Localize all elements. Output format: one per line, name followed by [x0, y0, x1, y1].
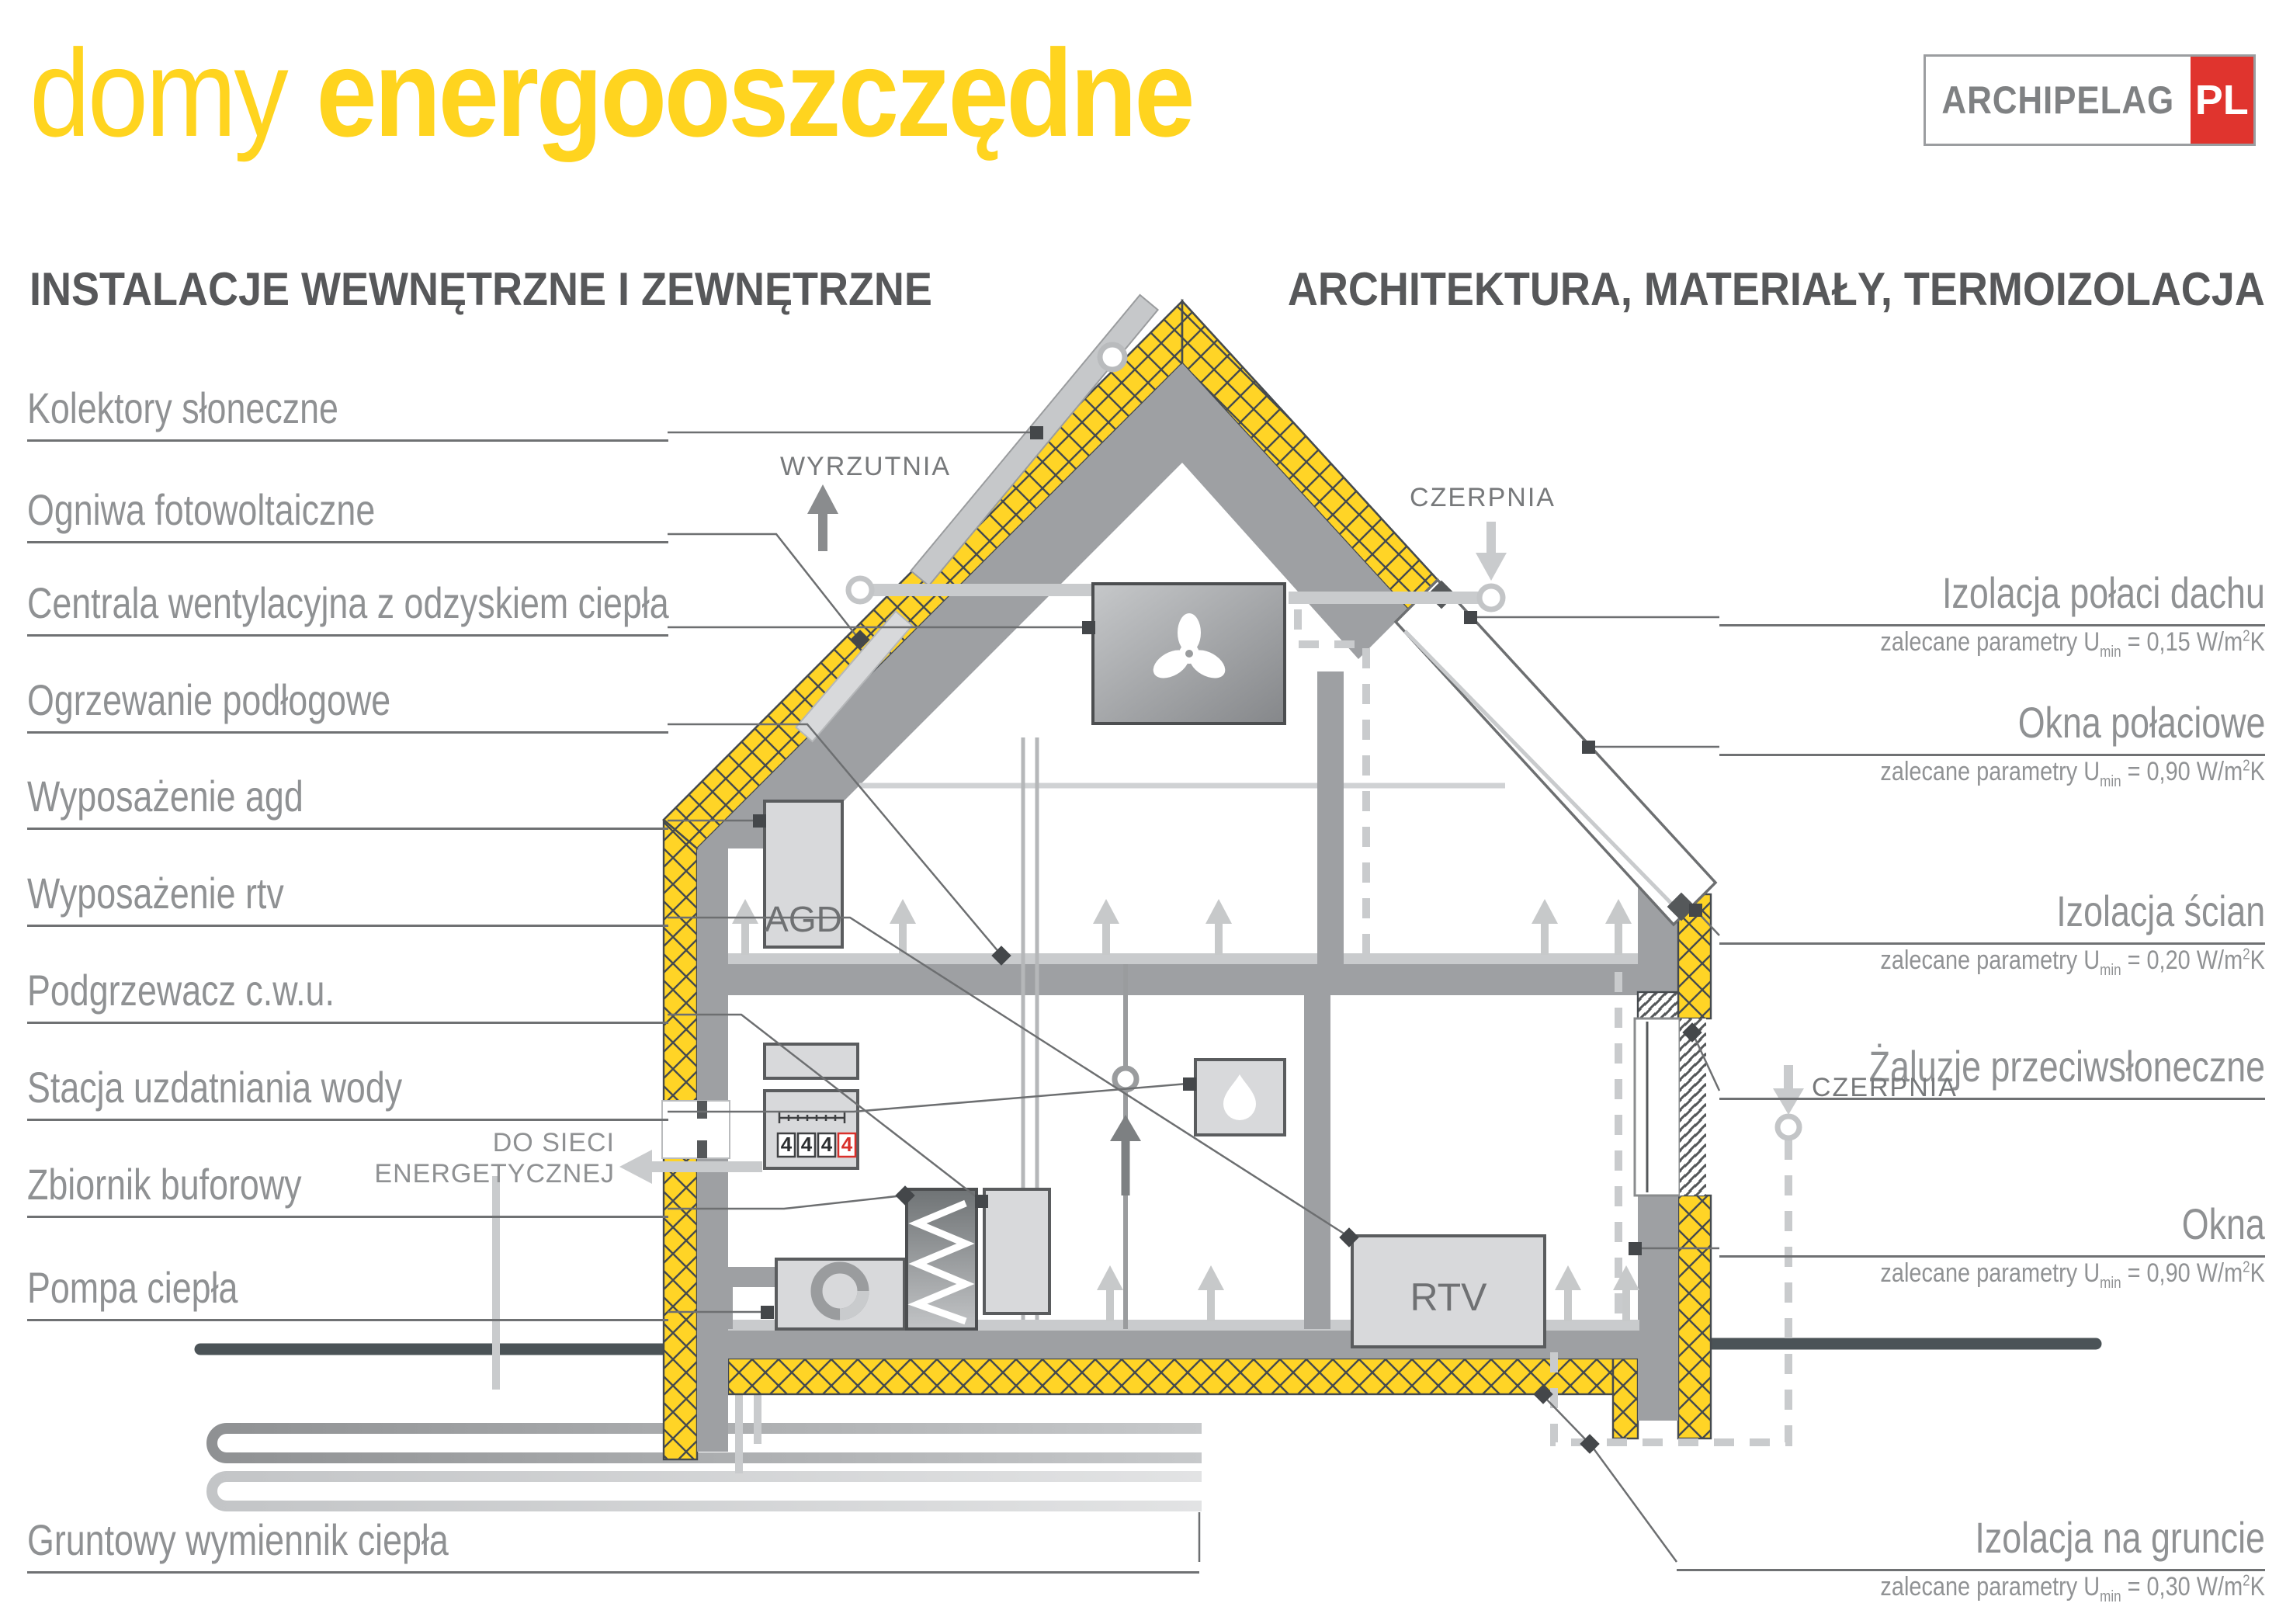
left-section-heading: INSTALACJE WEWNĘTRZNE I ZEWNĘTRZNE — [29, 262, 1032, 316]
label-gruntowy-wymiennik-ciepla: Gruntowy wymiennik ciepła — [27, 1515, 1199, 1574]
czerpnia-ground-inlet — [1778, 1116, 1799, 1138]
label-ogrzewanie-podlogowe: Ogrzewanie podłogowe — [27, 675, 668, 734]
label-wyposazenie-rtv: Wyposażenie rtv — [27, 868, 668, 927]
blind-box — [1638, 992, 1678, 1018]
param-izolacja-polaci-dachu: zalecane parametry Umin = 0,15 W/m2K — [1813, 627, 2265, 661]
dhw-tank — [984, 1189, 1049, 1313]
right-section-heading: ARCHITEKTURA, MATERIAŁY, TERMOIZOLACJA — [1179, 262, 2265, 316]
param-okna: zalecane parametry Umin = 0,90 W/m2K — [1813, 1258, 2265, 1293]
rtv-label: RTV — [1410, 1275, 1487, 1319]
right-wall — [1635, 883, 1711, 1195]
param-izolacja-scian: zalecane parametry Umin = 0,20 W/m2K — [1813, 946, 2265, 980]
czerpnia-roof-arrow-down — [1476, 553, 1507, 581]
label-centrala-wentylacyjna: Centrala wentylacyjna z odzyskiem ciepła — [27, 578, 668, 637]
annotation-czerpnia-roof: CZERPNIA — [1389, 483, 1576, 513]
logo-tld-badge: PL — [2191, 57, 2253, 144]
annotation-do-sieci-energetycznej: DO SIECI ENERGETYCZNEJ — [374, 1127, 615, 1189]
label-kolektory-sloneczne: Kolektory słoneczne — [27, 383, 668, 442]
inverter-box — [765, 1044, 858, 1078]
equipment: AGD 4 4 4 4 RTV — [713, 801, 1545, 1347]
param-okna-polaciowe: zalecane parametry Umin = 0,90 W/m2K — [1813, 757, 2265, 791]
svg-text:4: 4 — [801, 1133, 813, 1156]
annotation-wyrzutnia: WYRZUTNIA — [757, 452, 974, 482]
label-pompa-ciepla: Pompa ciepła — [27, 1262, 668, 1321]
label-stacja-uzdatniania-wody: Stacja uzdatniania wody — [27, 1062, 668, 1121]
svg-text:4: 4 — [841, 1133, 853, 1156]
logo-name: ARCHIPELAG — [1926, 57, 2191, 144]
svg-text:4: 4 — [781, 1133, 793, 1156]
foundation-right — [1638, 1195, 1678, 1421]
label-ogniwa-fotowoltaiczne: Ogniwa fotowoltaiczne — [27, 484, 668, 543]
left-wall — [662, 807, 730, 1459]
roof-windows — [1396, 580, 1715, 925]
label-okna: Okna — [1719, 1199, 2265, 1258]
collector-joint — [1100, 345, 1125, 370]
annotation-czerpnia-ground: CZERPNIA — [1812, 1073, 1958, 1103]
label-wyposazenie-agd: Wyposażenie agd — [27, 771, 668, 830]
agd-label: AGD — [765, 899, 842, 939]
sun-blind — [1680, 1018, 1706, 1195]
title-bold: energooszczędne — [316, 23, 1192, 162]
wyrzutnia-outlet — [848, 578, 872, 602]
param-izolacja-na-gruncie: zalecane parametry Umin = 0,30 W/m2K — [1813, 1572, 2265, 1606]
page-title: domy energooszczędne — [29, 22, 1351, 165]
wyrzutnia-arrow-up — [807, 484, 838, 514]
label-izolacja-scian: Izolacja ścian — [1719, 886, 2265, 945]
riser-arrow-up — [1110, 1115, 1141, 1141]
label-okna-polaciowe: Okna połaciowe — [1719, 697, 2265, 756]
svg-text:4: 4 — [821, 1133, 833, 1156]
czerpnia-roof-inlet — [1480, 586, 1503, 609]
title-light: domy — [29, 23, 286, 162]
label-zaluzje-przeciwsloneczne: Żaluzje przeciwsłoneczne — [1719, 1041, 2265, 1100]
label-izolacja-na-gruncie: Izolacja na gruncie — [1677, 1512, 2265, 1571]
window-right — [1635, 1018, 1680, 1195]
archipelag-logo: ARCHIPELAG PL — [1924, 54, 2256, 146]
ventilation-unit — [1093, 584, 1285, 724]
label-izolacja-polaci-dachu: Izolacja połaci dachu — [1719, 567, 2265, 626]
label-podgrzewacz-cwu: Podgrzewacz c.w.u. — [27, 965, 668, 1024]
